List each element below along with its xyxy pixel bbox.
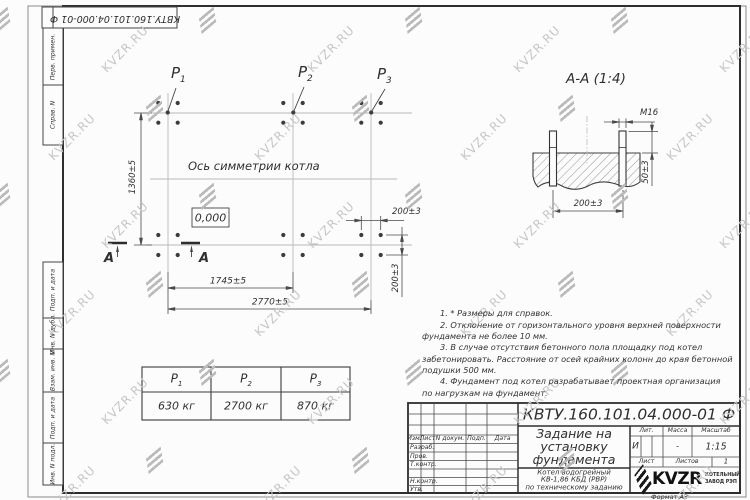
tb-signature-row: Утв. <box>410 487 423 493</box>
margin-stamp-label: Подп. и дата <box>50 269 57 311</box>
note-line: по нагрузкам на фундамент. <box>422 388 548 398</box>
point-label-p2: Р2 <box>298 65 313 84</box>
loads-table-header: Р1 <box>171 373 183 388</box>
tb-sheet-label: Лист <box>639 459 655 465</box>
tb-header-cell: N докум. <box>436 436 465 442</box>
margin-stamp-label: Подп. и дата <box>50 396 57 438</box>
point-label-p3: Р3 <box>377 67 392 86</box>
tb-mass-header: Масса <box>668 428 688 434</box>
note-line: забетонировать. Расстояние от осей крайн… <box>422 354 733 364</box>
product-line: КВ-1,86 КБД (РВР) <box>541 477 607 484</box>
margin-stamp-label: Справ. N <box>50 101 57 129</box>
anchor-bolt-section <box>550 131 557 186</box>
loads-table-value: 2700 кг <box>224 401 268 412</box>
kvzr-logo-caption: КОТЕЛЬНЫЙ <box>705 474 740 479</box>
tb-scale-value: 1:15 <box>705 442 726 452</box>
dim-spans <box>168 272 371 314</box>
tb-sheets-label: Листов <box>675 459 698 465</box>
dim-protrusion-label: 50±3 <box>642 160 651 183</box>
point-label-p1: Р1 <box>171 66 186 85</box>
product-line: по техническому заданию <box>525 485 622 492</box>
note-line: фундамента не более 10 мм. <box>422 331 548 341</box>
dim-bolt-x-label: 200±3 <box>392 208 421 217</box>
tb-header-cell: Дата <box>494 436 510 442</box>
margin-stamp-label: Перв. примен. <box>50 33 57 79</box>
section-view-title: А-А (1:4) <box>566 73 626 87</box>
loads-table-value: 630 кг <box>158 401 195 412</box>
dim-bolt-y-label: 200±3 <box>392 264 401 293</box>
kvzr-logo-caption: ЗАВОД РЭП <box>705 481 737 486</box>
plan-axes <box>146 93 412 300</box>
drawing-sheet: КВТУ.160.101.04.000-01 Ф Р1 Р2 Р3 Ось си… <box>0 0 750 500</box>
margin-stamp-label: Взам. инв. N <box>50 350 57 390</box>
thread-label: М16 <box>640 109 658 118</box>
note-line: 1. * Размеры для справок. <box>440 308 553 318</box>
margin-stamp-label: Инв. N дубл. <box>50 313 57 354</box>
note-line: 2. Отклонение от горизонтального уровня … <box>440 320 721 330</box>
corner-doc-number: КВТУ.160.101.04.000-01 Ф <box>50 13 180 23</box>
drawing-linework <box>0 0 750 500</box>
kvzr-logo-text: KVZR <box>652 471 702 488</box>
loads-table-header: Р3 <box>310 373 322 388</box>
tb-sheets-value: 1 <box>724 459 728 466</box>
tb-signature-row: Пров. <box>410 454 428 460</box>
dim-spacing-label: 200±3 <box>574 200 603 209</box>
margin-stamp-label: Инв. N подл. <box>50 444 57 485</box>
format-label: Формат А3 <box>651 494 688 500</box>
tb-signature-row: Разраб. <box>410 445 434 451</box>
dim-height-label: 1360±5 <box>129 160 138 194</box>
level-mark: 0,000 <box>195 212 227 223</box>
tb-signature-row: Н.контр. <box>410 479 438 485</box>
section-letter-a2: А <box>199 252 209 265</box>
title-line: фундамента <box>533 454 616 467</box>
note-line: подушки 500 мм. <box>422 365 496 375</box>
symmetry-axis-label: Ось симметрии котла <box>188 161 320 173</box>
loads-table-header: Р2 <box>240 373 252 388</box>
note-line: 3. В случае отсутствия бетонного пола пл… <box>440 342 702 352</box>
loads-table-value: 870 кг <box>297 401 334 412</box>
dim-inner-label: 1745±5 <box>210 278 246 287</box>
tb-header-cell: Лист <box>420 436 436 442</box>
tb-lit-value: И <box>632 442 639 451</box>
note-line: 4. Фундамент под котел разрабатывает про… <box>440 376 720 386</box>
title-block-doc-number: КВТУ.160.101.04.000-01 Ф <box>523 407 735 423</box>
tb-scale-header: Масштаб <box>701 428 730 434</box>
tb-mass-value: - <box>676 442 679 451</box>
section-letter-a1: А <box>104 252 114 265</box>
anchor-bolt-section <box>619 131 626 186</box>
tb-lit-header: Лит. <box>639 428 653 434</box>
tb-header-cell: Подп. <box>467 436 486 442</box>
point-leaders <box>166 87 385 114</box>
dim-outer-label: 2770±5 <box>252 299 288 308</box>
tb-signature-row: Т.контр. <box>410 462 437 468</box>
